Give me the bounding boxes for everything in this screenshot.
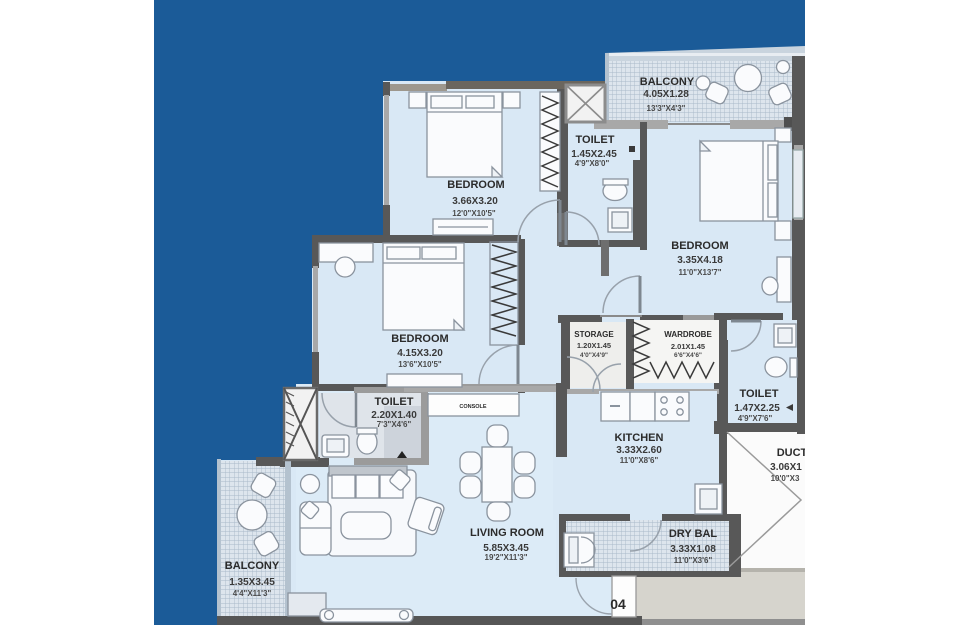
svg-text:11'0"X3'6": 11'0"X3'6" xyxy=(674,556,713,565)
svg-text:TOILET: TOILET xyxy=(576,134,615,146)
svg-text:TOILET: TOILET xyxy=(740,388,779,400)
svg-text:19'2"X11'3": 19'2"X11'3" xyxy=(485,553,528,562)
svg-text:2.01X1.45: 2.01X1.45 xyxy=(671,342,705,351)
svg-text:4'0"X4'9": 4'0"X4'9" xyxy=(580,352,608,359)
svg-text:DRY BAL: DRY BAL xyxy=(669,528,718,540)
svg-text:6'6"X4'6": 6'6"X4'6" xyxy=(674,352,702,359)
svg-text:BALCONY: BALCONY xyxy=(225,560,280,572)
svg-text:KITCHEN: KITCHEN xyxy=(615,432,664,444)
svg-text:13'6"X10'5": 13'6"X10'5" xyxy=(398,360,442,369)
svg-text:1.35X3.45: 1.35X3.45 xyxy=(229,577,275,588)
svg-text:BEDROOM: BEDROOM xyxy=(447,179,504,191)
svg-text:4'4"X11'3": 4'4"X11'3" xyxy=(233,589,272,598)
svg-text:DUCT: DUCT xyxy=(777,447,808,459)
svg-text:TOILET: TOILET xyxy=(375,396,414,408)
svg-text:BEDROOM: BEDROOM xyxy=(391,333,448,345)
svg-text:4'9"X8'0": 4'9"X8'0" xyxy=(575,159,610,168)
svg-text:7'3"X4'6": 7'3"X4'6" xyxy=(377,420,412,429)
svg-text:3.35X4.18: 3.35X4.18 xyxy=(677,255,723,266)
svg-text:04: 04 xyxy=(610,596,626,612)
svg-text:4.15X3.20: 4.15X3.20 xyxy=(397,348,443,359)
svg-text:3.66X3.20: 3.66X3.20 xyxy=(452,196,498,207)
svg-text:BEDROOM: BEDROOM xyxy=(671,240,728,252)
svg-text:4.05X1.28: 4.05X1.28 xyxy=(643,89,689,100)
svg-text:4'9"X7'6": 4'9"X7'6" xyxy=(738,414,773,423)
svg-text:CONSOLE: CONSOLE xyxy=(459,404,487,410)
svg-text:3.06X1: 3.06X1 xyxy=(770,462,802,473)
svg-text:3.33X2.60: 3.33X2.60 xyxy=(616,445,662,456)
svg-text:10'0"X3: 10'0"X3 xyxy=(771,474,800,483)
svg-text:11'0"X8'6": 11'0"X8'6" xyxy=(620,456,659,465)
svg-text:13'3"X4'3": 13'3"X4'3" xyxy=(647,104,686,113)
svg-text:3.33X1.08: 3.33X1.08 xyxy=(670,544,716,555)
svg-text:1.20X1.45: 1.20X1.45 xyxy=(577,341,611,350)
svg-text:12'0"X10'5": 12'0"X10'5" xyxy=(452,209,496,218)
svg-text:LIVING ROOM: LIVING ROOM xyxy=(470,527,544,539)
svg-text:BALCONY: BALCONY xyxy=(640,76,695,88)
svg-text:WARDROBE: WARDROBE xyxy=(664,330,712,339)
svg-text:1.47X2.25: 1.47X2.25 xyxy=(734,403,780,414)
svg-text:11'0"X13'7": 11'0"X13'7" xyxy=(679,268,722,277)
svg-text:STORAGE: STORAGE xyxy=(574,330,614,339)
